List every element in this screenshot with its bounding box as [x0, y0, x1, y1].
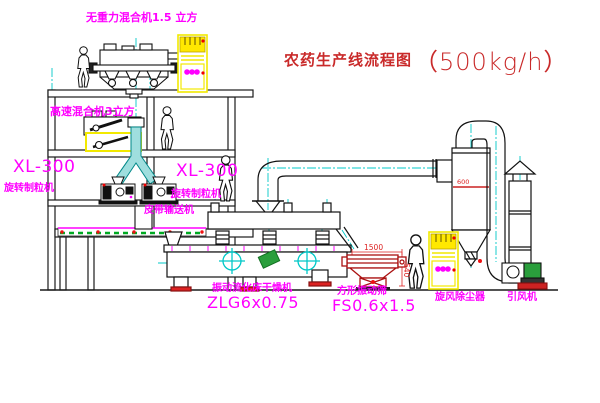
dryer-flange: [164, 245, 351, 252]
dryer-hood: [208, 212, 340, 229]
sieve-length-dim: 1500: [364, 243, 383, 252]
sieve-height-dim: 540: [402, 263, 411, 278]
cad-flow-diagram: 1500 540 600 农药生产线流程图 （500kg/h） 无重力混合机1.…: [0, 0, 600, 403]
label-high-speed-mixer: 高速混合机3立方: [50, 106, 135, 117]
square-sieve: [342, 249, 406, 290]
label-granulator-right-model: XL-300: [176, 163, 238, 180]
cyclone-dim: 600: [457, 178, 469, 186]
roof-slab: [48, 90, 253, 97]
person-icon: [408, 235, 423, 288]
cabinet-indicator-icon: [184, 69, 200, 75]
post: [60, 237, 66, 290]
fan-motor: [524, 263, 541, 278]
label-sieve-model: FS0.6x1.5: [332, 298, 416, 314]
label-belt-conveyor: 皮带输送机: [144, 206, 194, 216]
label-granulator-left-model: XL-300: [13, 159, 75, 176]
control-cabinet: [429, 232, 458, 289]
title-text: 农药生产线流程图: [284, 49, 412, 70]
label-gravity-mixer: 无重力混合机1.5 立方: [86, 12, 197, 23]
label-fan: 引风机: [507, 293, 537, 303]
title-capacity: （500kg/h）: [414, 42, 568, 77]
exhaust-duct: [252, 159, 437, 212]
fluid-bed-dryer: [164, 203, 358, 291]
belt-conveyor: [58, 228, 206, 236]
induced-draft-fan: [502, 263, 547, 289]
person-icon: [78, 47, 90, 87]
cabinet-indicator-icon: [435, 266, 451, 272]
control-cabinet: [178, 35, 207, 92]
label-granulator-right-name: 旋转制粒机: [171, 190, 221, 200]
post: [88, 237, 94, 290]
granulator-left: [99, 177, 137, 204]
label-dryer-model: ZLG6x0.75: [207, 295, 299, 311]
person-icon: [161, 107, 173, 149]
drawing-title: 农药生产线流程图 （500kg/h）: [284, 42, 568, 77]
mixer-paddles: [105, 71, 161, 87]
label-cyclone: 旋风除尘器: [435, 293, 485, 303]
label-granulator-left-name: 旋转制粒机: [4, 184, 54, 194]
